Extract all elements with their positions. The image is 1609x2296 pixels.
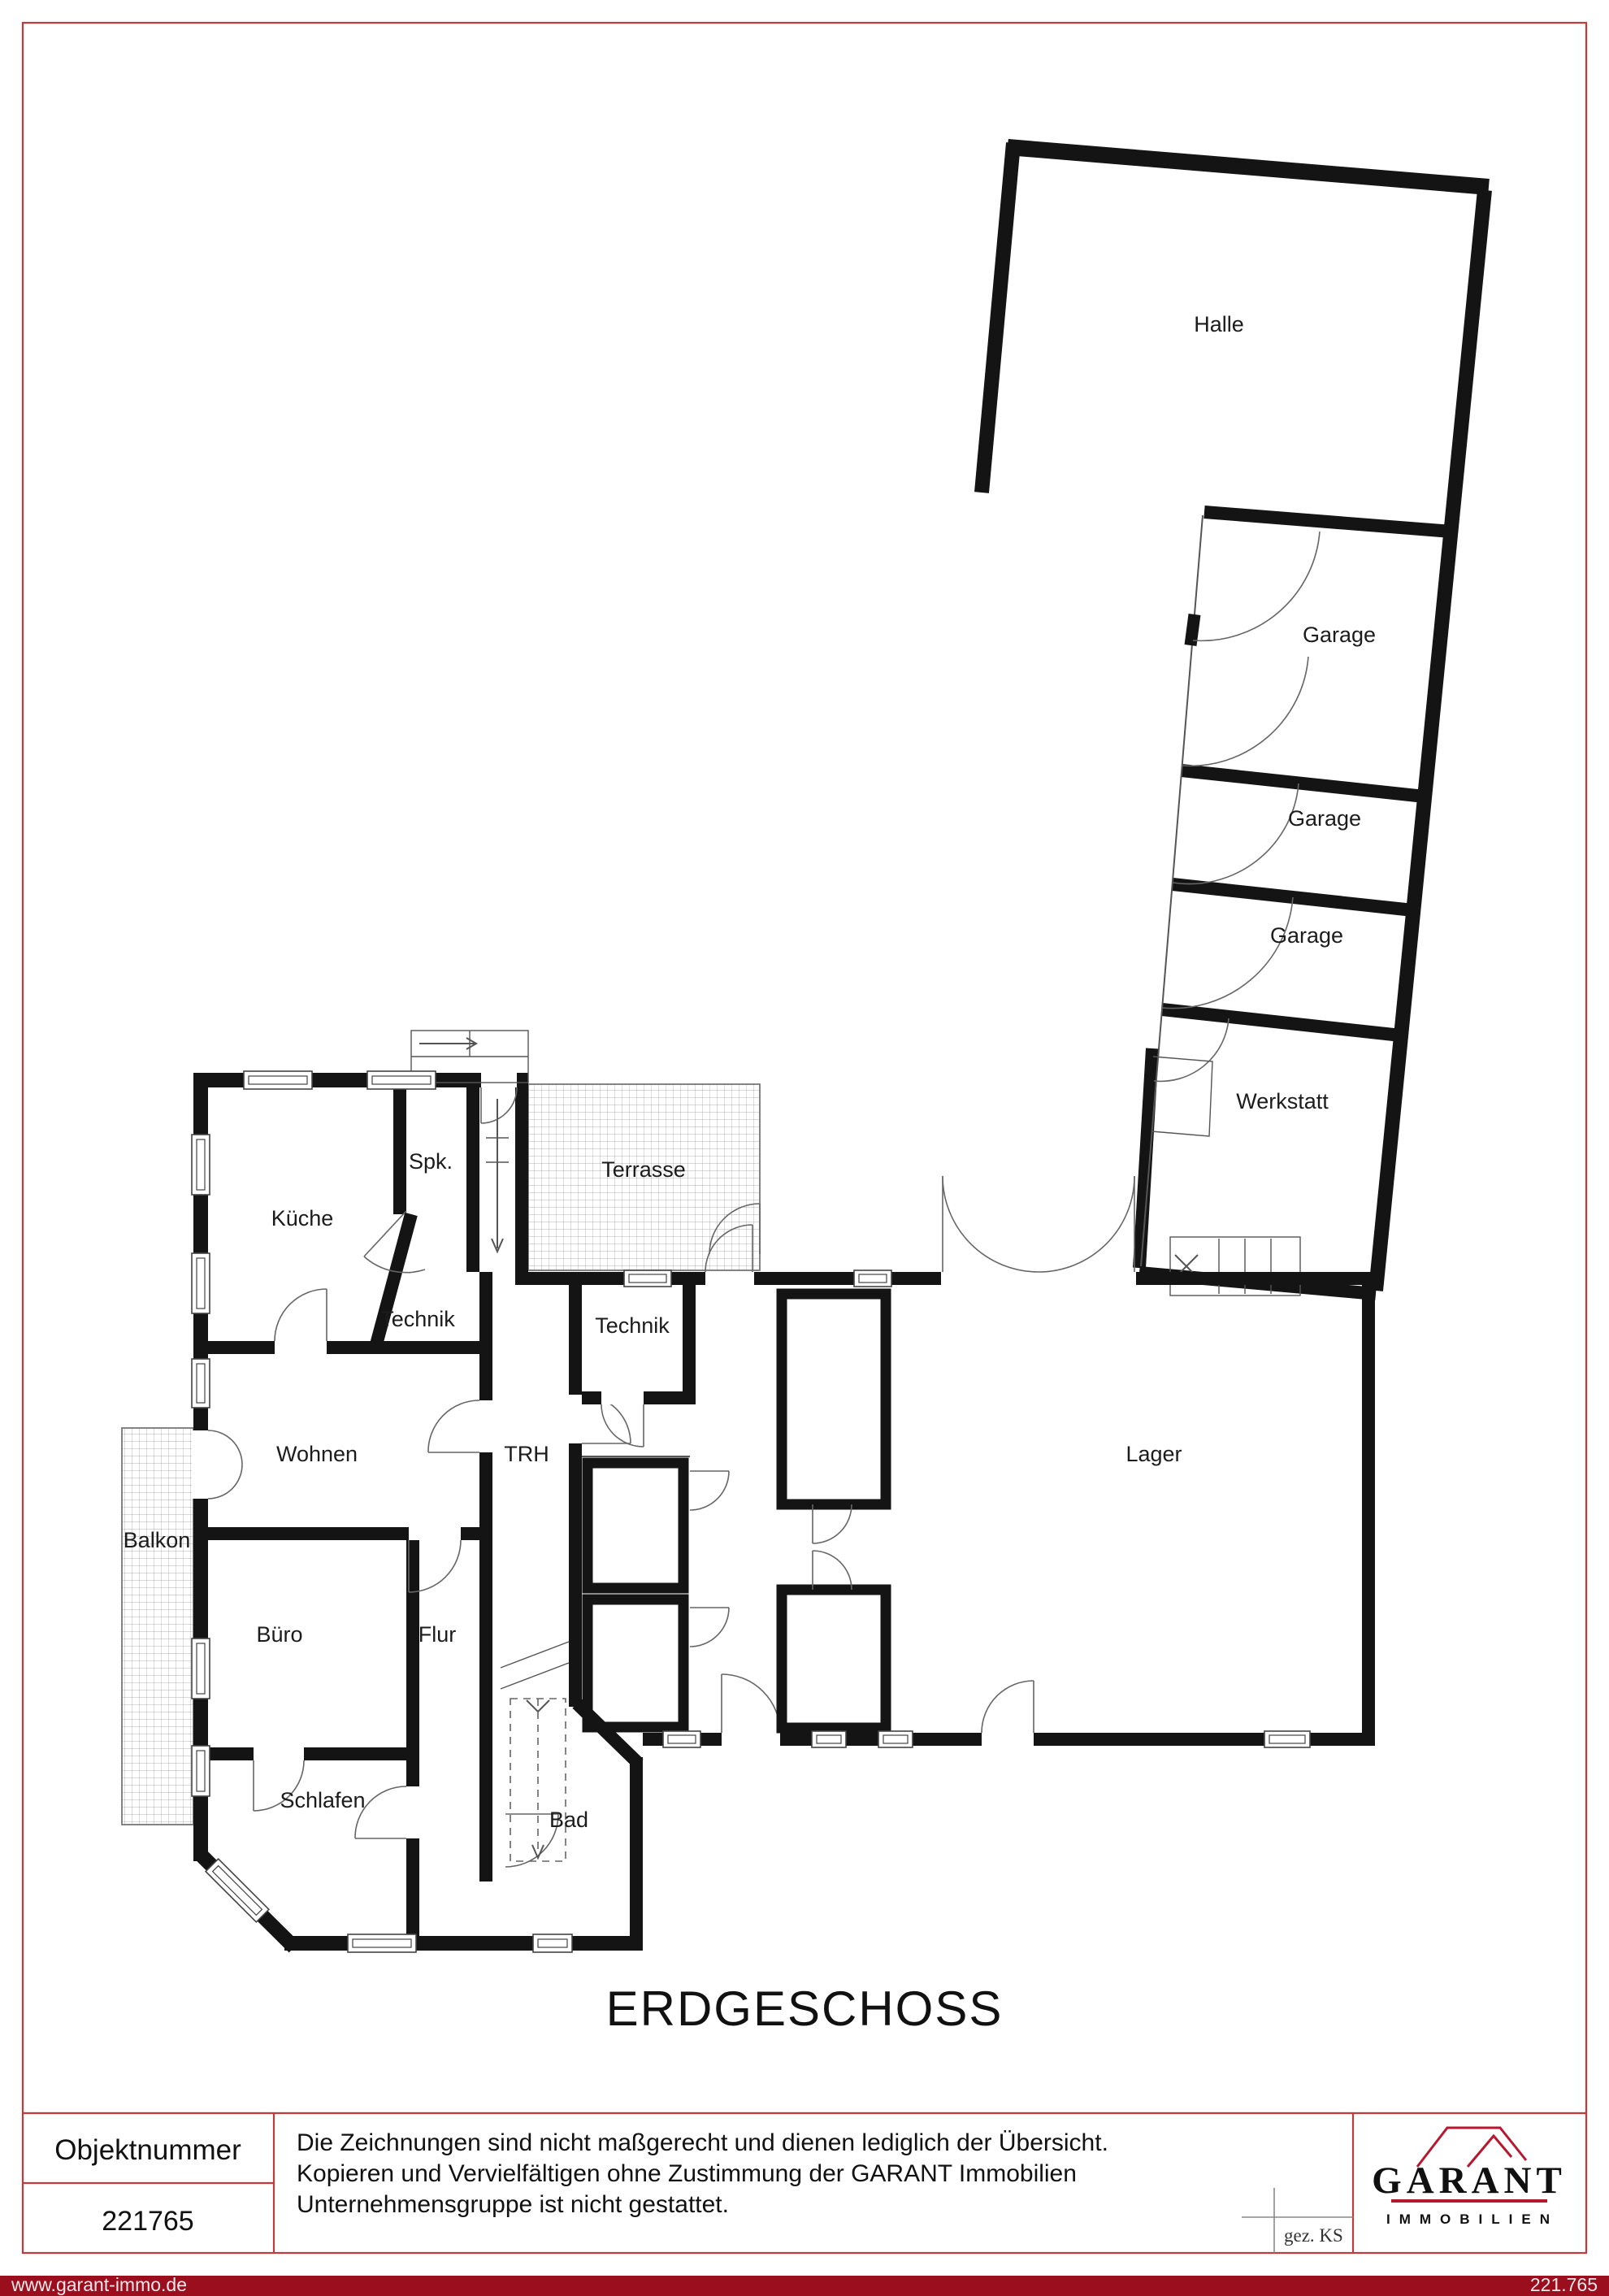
floorplan-canvas: Halle Garage Garage Garage Werkstatt Ter… <box>0 0 1609 2296</box>
double-door-arc-left <box>943 1176 1039 1272</box>
room-label-buero: Büro <box>256 1622 302 1647</box>
window <box>812 1731 846 1747</box>
window <box>192 1359 210 1408</box>
room-label-garage3: Garage <box>1270 923 1343 948</box>
room-label-kueche: Küche <box>271 1206 334 1230</box>
object-number-label: Objektnummer <box>54 2134 241 2166</box>
footer-bar: www.garant-immo.de 221.765 <box>0 2274 1609 2296</box>
room-label-flur: Flur <box>419 1622 457 1647</box>
double-door-arc-right <box>1039 1176 1134 1272</box>
room-label-wohnen: Wohnen <box>276 1442 358 1466</box>
room-label-terrasse: Terrasse <box>601 1157 686 1182</box>
title-block: Objektnummer 221765 Die Zeichnungen sind… <box>23 2113 1586 2253</box>
room-label-spk: Spk. <box>409 1149 453 1174</box>
lager-walls <box>515 1272 1375 1746</box>
room-label-bad: Bad <box>549 1808 588 1832</box>
room-label-garage2: Garage <box>1288 806 1361 831</box>
room-label-schlafen: Schlafen <box>280 1788 365 1812</box>
logo-subtitle: IMMOBILIEN <box>1386 2211 1559 2227</box>
window <box>192 1135 210 1195</box>
room-label-technik-links: Technik <box>380 1307 455 1331</box>
floorplan-page: Halle Garage Garage Garage Werkstatt Ter… <box>0 0 1609 2296</box>
window <box>206 1859 269 1922</box>
footer-website: www.garant-immo.de <box>11 2274 187 2295</box>
garant-logo: GARANT IMMOBILIEN <box>1372 2128 1567 2227</box>
floor-title: ERDGESCHOSS <box>606 1981 1004 2036</box>
logo-name: GARANT <box>1372 2159 1567 2202</box>
window <box>192 1746 210 1796</box>
room-label-trh: TRH <box>504 1442 549 1466</box>
window <box>192 1253 210 1313</box>
window <box>367 1071 436 1089</box>
window <box>244 1071 312 1089</box>
disclaimer-line-1: Die Zeichnungen sind nicht maßgerecht un… <box>297 2129 1108 2156</box>
logo-underline <box>1391 2199 1547 2203</box>
room-label-werkstatt: Werkstatt <box>1236 1089 1329 1113</box>
window <box>854 1270 891 1287</box>
room-label-balkon: Balkon <box>124 1528 191 1552</box>
lager-interior <box>582 1285 886 1728</box>
signed-label: gez. KS <box>1284 2225 1343 2246</box>
balkon-hatch <box>122 1428 193 1825</box>
garage-block-walls <box>1139 512 1451 1294</box>
footer-object-number: 221.765 <box>1530 2274 1598 2295</box>
window <box>192 1638 210 1699</box>
window <box>878 1731 913 1747</box>
window <box>348 1934 416 1952</box>
room-label-lager: Lager <box>1125 1442 1182 1466</box>
outdoor-areas <box>122 1084 760 1825</box>
room-label-halle: Halle <box>1194 312 1244 336</box>
disclaimer-line-2: Kopieren und Vervielfältigen ohne Zustim… <box>297 2160 1077 2187</box>
window <box>624 1270 671 1287</box>
disclaimer-line-3: Unternehmensgruppe ist nicht gestattet. <box>297 2191 729 2218</box>
window <box>533 1934 572 1952</box>
room-label-technik-rechts: Technik <box>595 1313 670 1338</box>
room-label-garage1: Garage <box>1303 623 1376 647</box>
window <box>1264 1731 1310 1747</box>
window <box>663 1731 700 1747</box>
object-number-value: 221765 <box>102 2206 193 2237</box>
